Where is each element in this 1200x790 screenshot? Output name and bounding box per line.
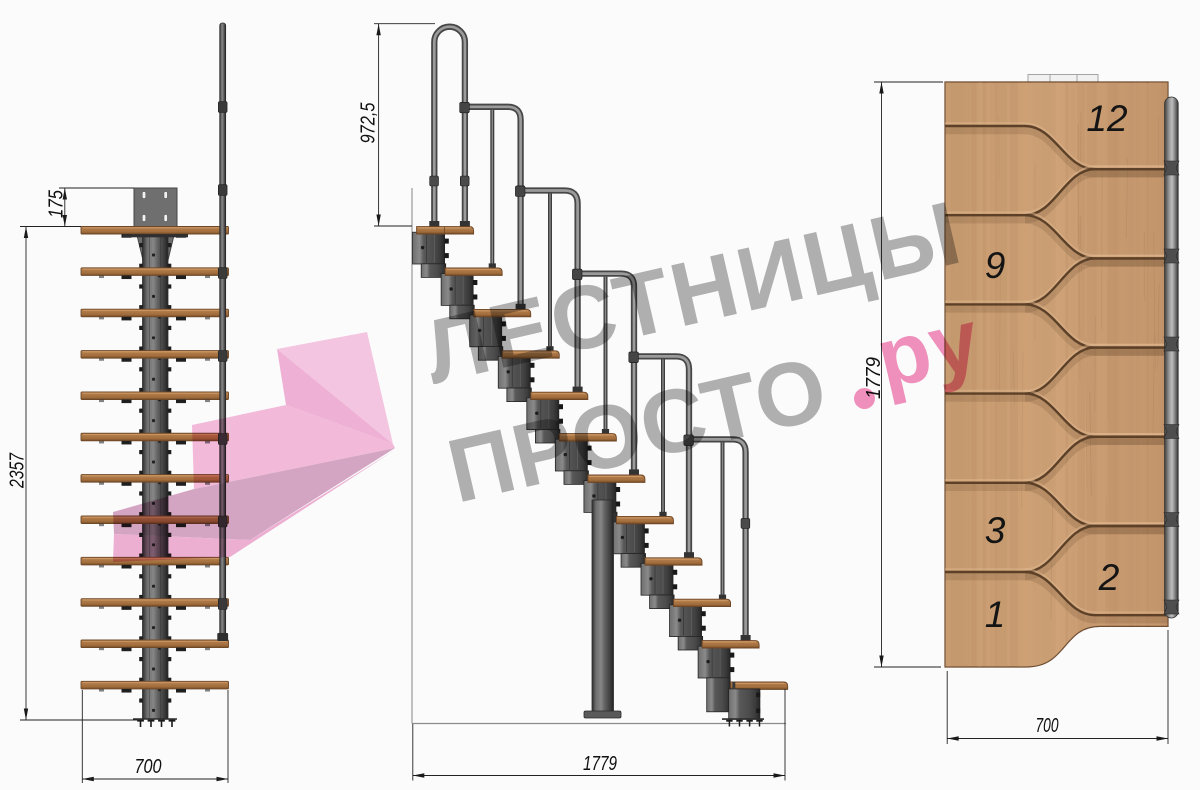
svg-text:972,5: 972,5 (358, 102, 380, 144)
svg-text:12: 12 (1086, 98, 1128, 139)
svg-text:1779: 1779 (583, 753, 617, 775)
svg-text:2357: 2357 (7, 452, 29, 488)
svg-text:3: 3 (985, 510, 1006, 551)
svg-text:175: 175 (46, 189, 68, 218)
svg-text:1: 1 (985, 594, 1006, 635)
svg-text:9: 9 (985, 245, 1006, 286)
svg-text:2: 2 (1098, 557, 1120, 598)
svg-text:700: 700 (1036, 715, 1059, 737)
svg-text:700: 700 (135, 756, 162, 778)
